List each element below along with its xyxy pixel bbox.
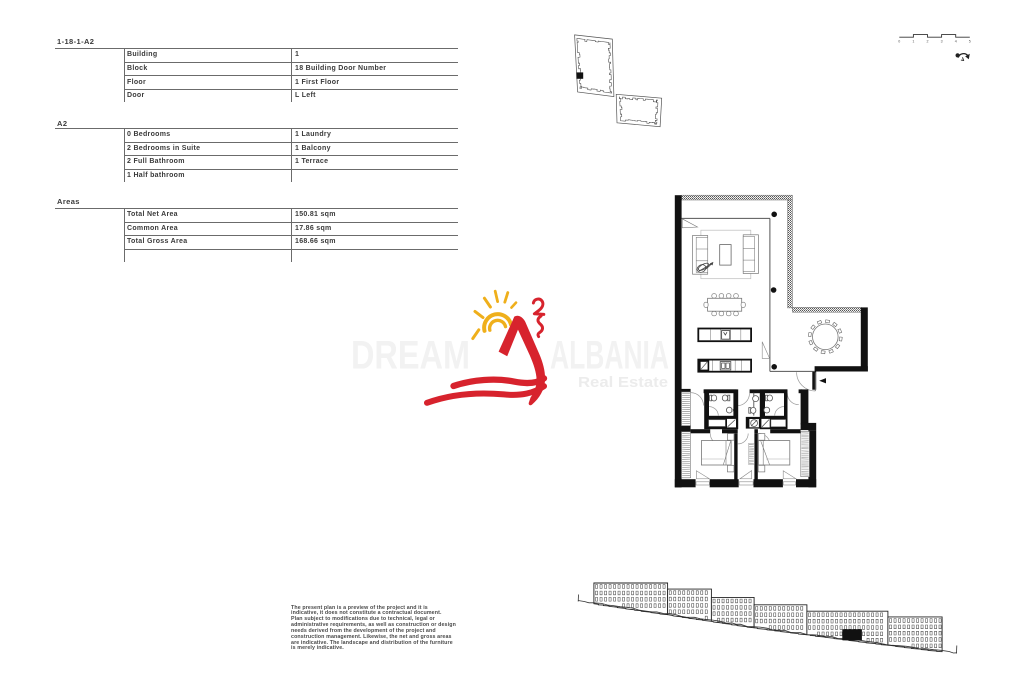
svg-text:5: 5 xyxy=(969,40,971,44)
svg-text:DREAM: DREAM xyxy=(351,334,470,378)
svg-text:3: 3 xyxy=(941,40,943,44)
svg-text:Real Estate: Real Estate xyxy=(578,375,668,391)
svg-text:2: 2 xyxy=(927,40,929,44)
svg-text:1: 1 xyxy=(912,40,914,44)
svg-text:4: 4 xyxy=(955,40,957,44)
svg-text:ALBANIA: ALBANIA xyxy=(550,334,669,378)
svg-text:0: 0 xyxy=(898,40,900,44)
